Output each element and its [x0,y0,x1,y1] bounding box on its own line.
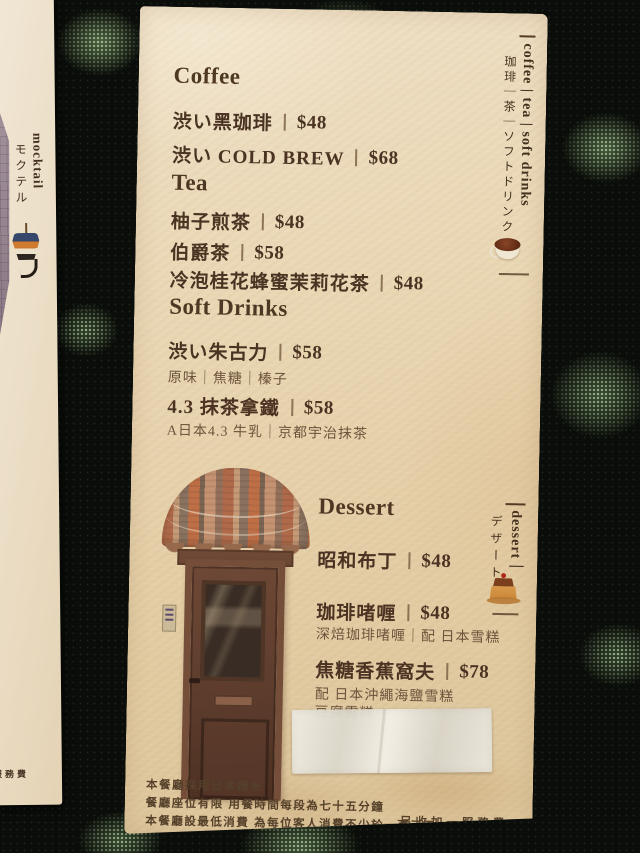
dessert-side-label-en: dessert｜ [503,503,525,623]
white-tape-cover [292,708,493,774]
menu-item-coffee-jelly: 珈琲啫喱 $48 [316,598,451,628]
menu-item-black-coffee: 渋い黑珈琲 $48 [173,107,328,137]
drinks-dessert-menu-card: Coffee 渋い黑珈琲 $48 渋い COLD BREW $68 Tea 柚子… [124,6,548,842]
menu-item-earl-grey: 伯爵茶 $58 [170,238,285,267]
section-heading-dessert: Dessert [318,494,395,521]
item-name: 昭和布丁 [317,546,398,575]
item-divider [446,663,448,680]
footer-note-rice: 本餐廳採用日本精米 [146,776,263,794]
footer-note-seating: 餐廳座位有限 用餐時間每段為七十五分鐘 [146,794,385,815]
menu-item-matcha-latte: 4.3 抹茶拿鐵 $58 [167,392,334,422]
item-name: 冷泡桂花蜂蜜茉莉花茶 [170,266,370,297]
item-name: 柚子煎茶 [171,207,252,236]
item-note-chocolate-flavours: 原味｜焦糖｜榛子 [168,367,288,389]
menu-item-cold-brew: 渋い COLD BREW $68 [172,141,399,172]
item-divider [408,552,410,569]
left-card-footer-partial: 服務費 [0,767,29,780]
mocktail-menu-card: mocktail モクテル 服務費 [0,0,62,805]
item-price: $48 [421,550,451,573]
item-note-matcha-milk: A日本4.3 牛乳｜京都宇治抹茶 [167,420,368,444]
mocktail-label-jp: モクテル [12,133,30,253]
item-price: $58 [304,397,334,420]
item-divider [279,344,281,361]
item-divider [291,399,293,416]
item-name: 4.3 抹茶拿鐵 [167,392,280,421]
dessert-side-label-jp: デザート [486,503,505,623]
item-price: $48 [297,112,327,135]
cafe-door-illustration [157,467,311,802]
door-window [200,580,266,681]
section-heading-soft-drinks: Soft Drinks [169,294,288,322]
striped-awning [162,467,312,550]
menu-item-caramel-banana-waffle: 焦糖香蕉窩夫 $78 [315,655,490,685]
item-name: 珈琲啫喱 [316,598,397,627]
item-price: $58 [292,341,322,364]
door-letter-slot [214,695,254,708]
item-divider [241,244,243,261]
item-divider [355,149,357,166]
kissaten-sign-plate [162,605,177,632]
item-price: $48 [420,602,450,625]
mocktail-label-en: mocktail [29,133,46,253]
menu-item-yuzu-sencha: 柚子煎茶 $48 [171,207,306,237]
item-divider [262,213,264,230]
item-divider [381,275,383,292]
item-note-coffee-jelly: 深焙珈琲啫喱｜配 日本雪糕 [316,623,501,647]
item-name: 焦糖香蕉窩夫 [315,655,436,684]
item-price: $68 [368,147,398,170]
dessert-side-label: dessert｜ デザート [483,503,525,624]
menu-item-osmanthus-jasmine-tea: 冷泡桂花蜂蜜茉莉花茶 $48 [170,266,424,298]
item-divider [284,114,286,131]
item-price: $78 [459,661,489,684]
drinks-side-label: coffee | tea | soft drinks 珈琲｜茶｜ソフトドリンク [495,35,536,286]
item-name: 伯爵茶 [170,238,231,266]
menu-item-chocolate: 渋い朱古力 $58 [168,337,323,367]
door [181,559,286,801]
item-name: 渋い COLD BREW [172,141,345,171]
item-price: $48 [394,272,424,295]
section-heading-tea: Tea [171,170,208,197]
item-name: 渋い朱古力 [168,337,269,366]
item-price: $58 [254,242,284,265]
menu-item-showa-pudding: 昭和布丁 $48 [317,546,452,576]
section-heading-coffee: Coffee [173,63,240,90]
item-name: 渋い黑珈琲 [173,107,274,136]
item-divider [407,604,409,621]
item-price: $48 [275,211,305,234]
mocktail-side-label: mocktail モクテル [9,133,46,253]
mocktail-tail-curve [21,259,38,278]
door-handle [189,678,200,683]
